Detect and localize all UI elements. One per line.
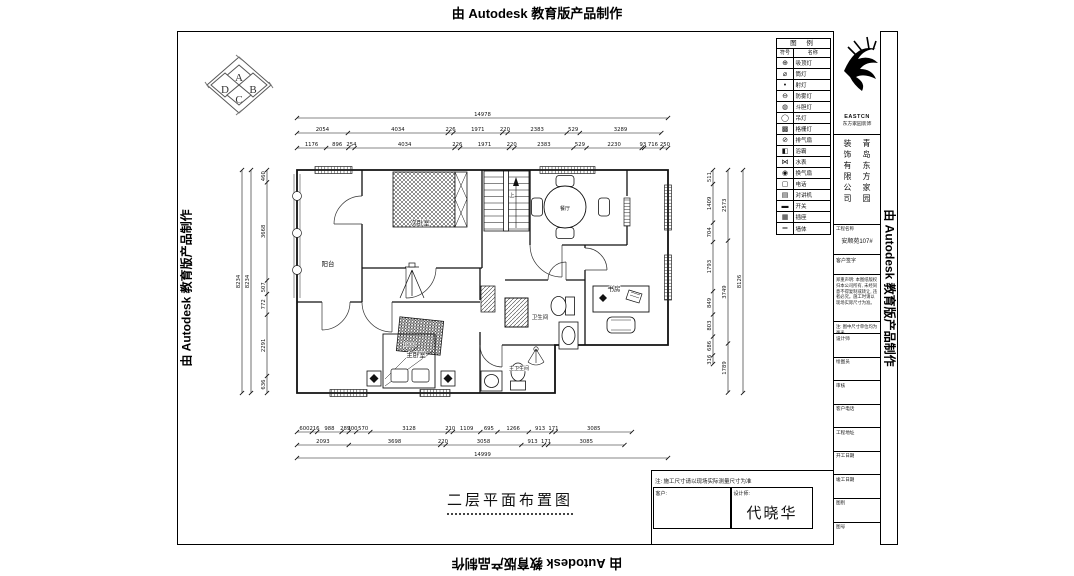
title-block: EASTCN 东方家园装饰 装饰有限公司 青岛东方家园 工程名称 安顺苑107#…: [833, 31, 881, 545]
dim-text: 913: [528, 439, 538, 445]
dim-text: 3085: [587, 426, 600, 432]
project-box: 工程名称 安顺苑107#: [834, 225, 880, 255]
dim-text: 2054: [316, 127, 330, 133]
title-block-row-label: 客户电话: [836, 406, 878, 412]
nightstand-left: [367, 371, 381, 386]
unit-note-box: 注: 图中尺寸单位均为毫米: [834, 322, 880, 334]
legend-row: ◉换气扇: [777, 168, 830, 179]
legend-row: ▩格栅灯: [777, 124, 830, 135]
legend-row: ▦插座: [777, 212, 830, 223]
legend-item-name: 防雾灯: [794, 92, 830, 100]
dim-text: 529: [568, 127, 578, 133]
legend-item-name: 水表: [794, 158, 830, 166]
legend-item-name: 插座: [794, 213, 830, 221]
client-box-label: 客户:: [656, 491, 667, 497]
dim-text: 254: [346, 142, 357, 148]
legend-title: 图 例: [777, 39, 830, 49]
autodesk-stamp-bottom: 由 Autodesk 教育版产品制作: [0, 555, 1074, 574]
washbasin-master: [481, 371, 502, 391]
dim-text: 220: [438, 439, 449, 445]
dim-text: 1266: [506, 426, 520, 432]
client-box: 客户:: [653, 487, 731, 529]
legend-row: ⋈水表: [777, 157, 830, 168]
designer-name: 代晓华: [734, 502, 811, 523]
dim-text: 896: [332, 142, 343, 148]
dim-text: 220: [507, 142, 518, 148]
room-label: 餐厅: [560, 205, 570, 212]
dim-text: 772: [261, 299, 267, 309]
room-label: 卫生间: [532, 313, 549, 321]
dim-text: 14999: [474, 452, 491, 458]
notice-text: 郑重声明: 本图纸版权归本公司所有, 未经同意不得复制或转让, 违者必究。施工时…: [836, 277, 877, 305]
title-block-row-label: 竣工日期: [836, 477, 878, 483]
dim-text: 507: [261, 282, 267, 292]
project-label: 工程名称: [836, 226, 878, 232]
dim-text: 695: [484, 426, 494, 432]
room-label: 主卧室: [406, 350, 426, 359]
legend-symbol-icon: ═: [777, 223, 794, 234]
legend-row: ⊕吸顶灯: [777, 58, 830, 69]
dim-text: 2291: [261, 339, 267, 352]
dim-text: 3289: [614, 127, 627, 133]
legend-symbol-icon: ◧: [777, 146, 794, 157]
dim-text: 226: [452, 142, 463, 148]
title-block-row-label: 工程地址: [836, 430, 878, 436]
title-block-row-label: 图号: [836, 524, 878, 530]
legend-row: ▤对讲机: [777, 190, 830, 201]
dim-text: 686: [707, 340, 713, 351]
title-block-row: 开工日期: [834, 452, 880, 476]
legend-symbol-icon: ◍: [777, 102, 794, 113]
room-label: 上: [509, 192, 514, 199]
legend-item-name: 换气扇: [794, 169, 830, 177]
dim-text: 316: [707, 354, 713, 365]
dim-text: 8234: [245, 274, 251, 288]
legend-item-name: 浴霸: [794, 147, 830, 155]
title-block-row: 设计师: [834, 334, 880, 358]
notice-box: 郑重声明: 本图纸版权归本公司所有, 未经同意不得复制或转让, 违者必究。施工时…: [834, 275, 880, 322]
dining-table: [532, 176, 610, 239]
dim-text: 226: [446, 127, 457, 133]
duct-shaft: [505, 298, 528, 327]
dim-text: 3698: [388, 439, 402, 445]
company-name-col-left: 装饰有限公司: [842, 139, 853, 220]
dim-text: 849: [707, 298, 713, 308]
dim-text: 716: [648, 142, 659, 148]
room-label: 阳台: [322, 259, 335, 268]
room-label: 1800: [403, 342, 415, 348]
legend-item-name: 射灯: [794, 81, 830, 89]
legend-symbol-icon: ▬: [777, 201, 794, 212]
dim-text: 2230: [607, 142, 621, 148]
legend-symbol-icon: ⌀: [777, 69, 794, 80]
title-block-row: 工程地址: [834, 428, 880, 452]
room-label: 主卫生间: [509, 365, 529, 372]
title-block-row: 竣工日期: [834, 475, 880, 499]
legend-table: 图 例 符号 名称 ⊕吸顶灯⌀筒灯•射灯⊖防雾灯◍斗胆灯◯吊灯▩格栅灯⊘排气扇◧…: [776, 38, 831, 235]
legend-item-name: 墙体: [794, 225, 830, 233]
legend-row: ⊖防雾灯: [777, 91, 830, 102]
legend-symbol-icon: ▦: [777, 212, 794, 223]
legend-row: ◍斗胆灯: [777, 102, 830, 113]
legend-item-name: 斗胆灯: [794, 103, 830, 111]
title-block-row: 客户电话: [834, 405, 880, 429]
dim-text: 511: [707, 172, 713, 182]
dim-text: 1971: [471, 127, 484, 133]
shower-head: [528, 347, 544, 365]
legend-symbol-icon: ▢: [777, 179, 794, 190]
legend-item-name: 排气扇: [794, 136, 830, 144]
title-block-rows: 设计师绘图员审核客户电话工程地址开工日期竣工日期图别图号: [834, 334, 880, 545]
designer-box: 设计师: 代晓华: [731, 487, 813, 529]
footer-note: 注: 施工尺寸请以现场实际测量尺寸为准: [655, 477, 833, 485]
title-block-row-label: 绘图员: [836, 359, 878, 365]
legend-row: ▢电话: [777, 179, 830, 190]
washbasin: [559, 322, 578, 349]
dim-text: 2573: [722, 199, 728, 212]
legend-row: ⌀筒灯: [777, 69, 830, 80]
legend-item-name: 吸顶灯: [794, 59, 830, 67]
dim-text: 1789: [722, 361, 728, 374]
dim-text: 913: [535, 426, 545, 432]
dim-text: 636: [261, 379, 267, 390]
dim-text: 4034: [391, 127, 405, 133]
compass-letter-d: D: [221, 84, 229, 96]
dim-text: 8234: [236, 274, 242, 288]
title-block-row: 图别: [834, 499, 880, 523]
dim-text: 171: [548, 426, 558, 432]
dim-text: 1793: [707, 260, 713, 273]
legend-item-name: 吊灯: [794, 114, 830, 122]
autodesk-stamp-top: 由 Autodesk 教育版产品制作: [0, 3, 1074, 22]
legend-symbol-icon: ▩: [777, 124, 794, 135]
legend-col-name: 名称: [794, 49, 830, 57]
legend-item-name: 对讲机: [794, 191, 830, 199]
dim-text: 14978: [474, 112, 491, 118]
legend-row: ◧浴霸: [777, 146, 830, 157]
dim-text: 1409: [707, 197, 713, 210]
dim-text: 4034: [398, 142, 412, 148]
legend-col-symbol: 符号: [777, 49, 794, 57]
stairs: [484, 171, 529, 231]
legend-symbol-icon: ⊕: [777, 58, 794, 69]
dim-text: 1109: [460, 426, 473, 432]
legend-row: ◯吊灯: [777, 113, 830, 124]
dim-text: 8126: [737, 274, 743, 288]
dim-text: 570: [358, 426, 369, 432]
client-sign-label: 客户签字: [836, 258, 856, 264]
desk: [593, 286, 649, 333]
room-label: 书房: [608, 284, 621, 293]
dim-text: 2383: [537, 142, 550, 148]
compass-letter-a: A: [235, 72, 243, 84]
dim-text: 3668: [261, 224, 267, 238]
company-logo-box: EASTCN 东方家园装饰: [834, 31, 880, 135]
dim-text: 220: [500, 127, 511, 133]
nightstand-right: [441, 371, 455, 386]
dim-text: 460: [261, 170, 267, 181]
compass-letter-b: B: [249, 84, 256, 96]
closet: [481, 286, 495, 312]
dim-text: 2383: [530, 127, 543, 133]
legend-symbol-icon: ◯: [777, 113, 794, 124]
project-value: 安顺苑107#: [836, 236, 878, 245]
legend-symbol-icon: ▤: [777, 190, 794, 201]
legend-item-name: 开关: [794, 202, 830, 210]
client-sign-box: 客户签字: [834, 255, 880, 275]
dim-text: 1971: [478, 142, 491, 148]
cad-plot-sheet: { "stamps": { "top": "由 Autodesk 教育版产品制作…: [0, 0, 1074, 576]
legend-row: •射灯: [777, 80, 830, 91]
dim-text: 210: [445, 426, 456, 432]
company-name-col-right: 青岛东方家园: [861, 139, 872, 220]
dim-text: 216: [309, 426, 320, 432]
legend-item-name: 筒灯: [794, 70, 830, 78]
dim-text: 803: [707, 320, 713, 330]
legend-item-name: 格栅灯: [794, 125, 830, 133]
dim-text: 3085: [580, 439, 593, 445]
floor-plan: 1497820544034226197122023835293289117689…: [232, 104, 760, 468]
dim-text: 300: [347, 426, 358, 432]
legend-row: ▬开关: [777, 201, 830, 212]
dim-text: 704: [707, 227, 713, 238]
unit-note-text: 注: 图中尺寸单位均为毫米: [836, 324, 877, 335]
dim-text: 529: [575, 142, 585, 148]
dim-text: 3128: [402, 426, 416, 432]
title-block-row-label: 设计师: [836, 336, 878, 342]
title-block-row-label: 开工日期: [836, 453, 878, 459]
dim-text: 1176: [305, 142, 319, 148]
dim-text: 250: [660, 142, 671, 148]
room-label: 次卧室: [410, 218, 430, 227]
title-block-row-label: 审核: [836, 383, 878, 389]
dim-text: 93: [640, 142, 647, 148]
legend-symbol-icon: ⊘: [777, 135, 794, 146]
legend-symbol-icon: •: [777, 80, 794, 91]
dim-text: 3058: [477, 439, 491, 445]
dim-text: 3749: [722, 285, 728, 298]
drawing-title: 二层平面布置图: [447, 489, 573, 515]
legend-row: ═墙体: [777, 223, 830, 234]
company-bird-logo-icon: [834, 31, 880, 109]
title-block-row: 审核: [834, 381, 880, 405]
title-block-row: 绘图员: [834, 358, 880, 382]
legend-symbol-icon: ◉: [777, 168, 794, 179]
legend-symbol-icon: ⊖: [777, 91, 794, 102]
legend-item-name: 电话: [794, 180, 830, 188]
dim-text: 171: [541, 439, 551, 445]
legend-row: ⊘排气扇: [777, 135, 830, 146]
legend-symbol-icon: ⋈: [777, 157, 794, 168]
toilet: [551, 297, 575, 316]
dim-text: 988: [324, 426, 335, 432]
designer-box-label: 设计师:: [734, 491, 750, 497]
logo-subtext: 东方家园装饰: [834, 120, 880, 127]
title-block-row-label: 图别: [836, 500, 878, 506]
title-block-row: 图号: [834, 523, 880, 546]
dim-text: 2093: [316, 439, 329, 445]
company-name: 装饰有限公司 青岛东方家园: [834, 135, 880, 225]
